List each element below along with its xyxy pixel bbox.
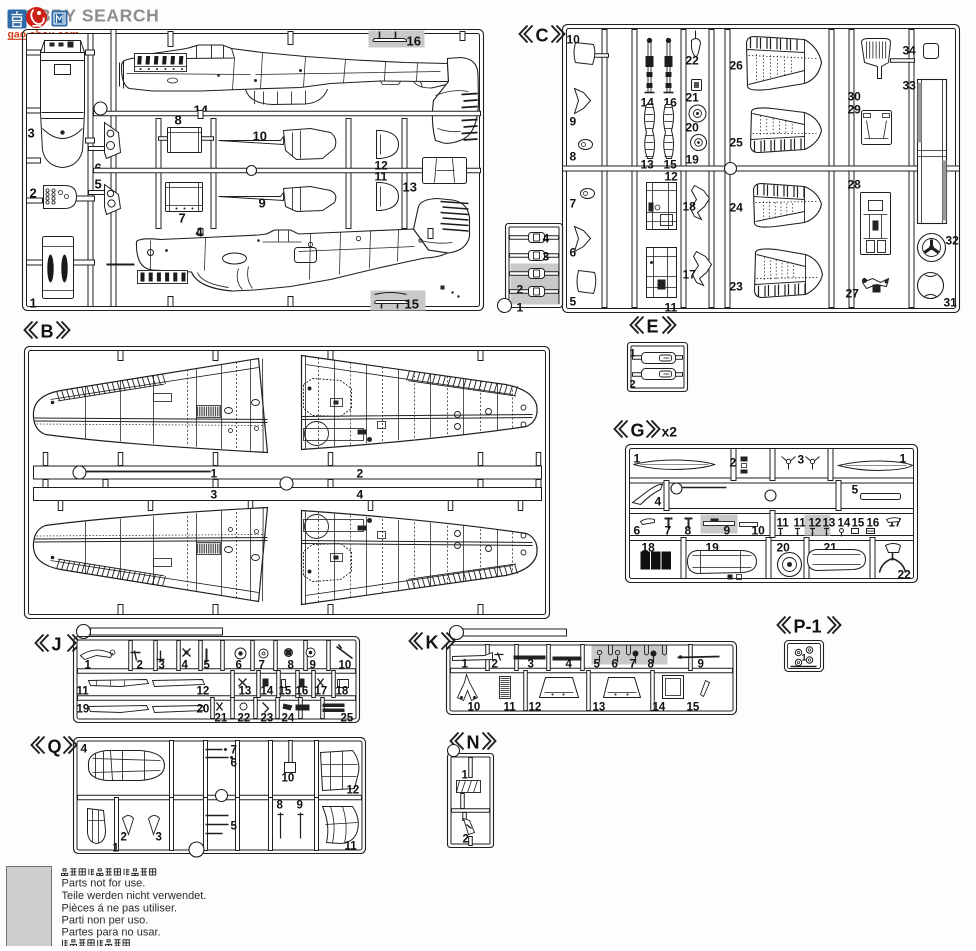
svg-text:25: 25: [730, 136, 744, 150]
svg-text:15: 15: [687, 702, 700, 714]
svg-text:33: 33: [903, 79, 917, 93]
svg-text:6: 6: [634, 524, 641, 538]
svg-text:2: 2: [492, 659, 498, 671]
svg-text:11: 11: [777, 518, 790, 530]
svg-text:13: 13: [823, 518, 836, 530]
svg-text:28: 28: [848, 178, 862, 192]
svg-text:5: 5: [95, 177, 102, 192]
svg-text:31: 31: [944, 296, 958, 310]
svg-text:22: 22: [898, 568, 912, 582]
svg-text:3: 3: [28, 126, 35, 141]
svg-text:21: 21: [215, 713, 228, 725]
svg-text:8: 8: [570, 150, 577, 164]
svg-text:14: 14: [261, 686, 274, 698]
svg-text:9: 9: [297, 800, 303, 812]
svg-text:32: 32: [946, 234, 960, 248]
svg-text:17: 17: [683, 268, 697, 282]
svg-text:1: 1: [113, 843, 120, 855]
svg-text:6: 6: [612, 659, 618, 671]
svg-text:16: 16: [867, 518, 880, 530]
svg-text:11: 11: [504, 702, 517, 714]
svg-text:16: 16: [407, 34, 421, 49]
svg-text:21: 21: [686, 91, 700, 105]
svg-text:10: 10: [567, 33, 581, 47]
svg-text:4: 4: [182, 660, 189, 672]
svg-text:Partes para no usar.: Partes para no usar.: [62, 927, 161, 939]
svg-text:18: 18: [683, 200, 697, 214]
svg-text:3: 3: [543, 250, 550, 264]
svg-text:29: 29: [848, 103, 862, 117]
svg-text:7: 7: [630, 659, 636, 671]
svg-text:13: 13: [239, 686, 252, 698]
svg-text:2: 2: [121, 832, 127, 844]
svg-text:30: 30: [848, 90, 862, 104]
svg-text:J: J: [52, 635, 62, 655]
svg-text:Q: Q: [48, 737, 62, 757]
svg-text:1: 1: [634, 452, 641, 466]
svg-text:6: 6: [231, 758, 237, 770]
svg-text:15: 15: [279, 686, 292, 698]
svg-text:3: 3: [159, 660, 165, 672]
svg-text:3: 3: [211, 488, 218, 502]
svg-text:7: 7: [179, 211, 186, 226]
svg-text:11: 11: [794, 518, 807, 530]
svg-text:9: 9: [570, 115, 577, 129]
svg-text:7: 7: [231, 745, 237, 757]
svg-text:23: 23: [261, 713, 274, 725]
svg-text:10: 10: [468, 702, 481, 714]
svg-text:x2: x2: [662, 424, 678, 440]
svg-text:1: 1: [462, 659, 469, 671]
svg-text:4: 4: [543, 232, 550, 246]
svg-text:9: 9: [310, 660, 316, 672]
svg-text:19: 19: [77, 704, 90, 716]
svg-text:20: 20: [686, 121, 700, 135]
svg-text:13: 13: [403, 180, 417, 195]
svg-text:11: 11: [665, 301, 678, 315]
svg-text:7: 7: [570, 197, 577, 211]
svg-text:3: 3: [528, 659, 534, 671]
svg-text:2: 2: [630, 379, 636, 391]
svg-text:22: 22: [686, 54, 700, 68]
svg-text:11: 11: [77, 686, 90, 698]
svg-text:26: 26: [730, 59, 744, 73]
svg-text:18: 18: [336, 686, 349, 698]
svg-text:2: 2: [730, 456, 737, 470]
svg-text:27: 27: [846, 287, 860, 301]
svg-text:12: 12: [197, 686, 210, 698]
svg-text:17: 17: [315, 686, 328, 698]
svg-text:25: 25: [341, 713, 354, 725]
svg-text:1: 1: [802, 653, 807, 663]
svg-text:1: 1: [462, 770, 469, 782]
svg-text:P-1: P-1: [794, 617, 822, 637]
svg-text:Teile werden nicht verwendet.: Teile werden nicht verwendet.: [62, 890, 207, 902]
svg-text:11: 11: [375, 170, 388, 184]
svg-text:Parti non per uso.: Parti non per uso.: [62, 915, 149, 927]
svg-text:9: 9: [724, 524, 731, 538]
svg-text:20: 20: [197, 704, 210, 716]
svg-text:14: 14: [838, 518, 851, 530]
svg-text:4: 4: [196, 225, 204, 240]
svg-text:5: 5: [852, 483, 859, 497]
svg-text:12: 12: [665, 170, 679, 184]
svg-text:3: 3: [798, 453, 805, 467]
svg-text:15: 15: [852, 518, 865, 530]
svg-text:3: 3: [156, 832, 162, 844]
svg-text:10: 10: [339, 660, 352, 672]
svg-text:12: 12: [529, 702, 542, 714]
svg-text:5: 5: [204, 660, 211, 672]
svg-text:4: 4: [81, 742, 88, 756]
svg-text:8: 8: [277, 800, 284, 812]
svg-text:Parts not for use.: Parts not for use.: [62, 878, 146, 890]
svg-text:5: 5: [570, 295, 577, 309]
svg-text:4: 4: [655, 495, 662, 509]
svg-text:23: 23: [730, 280, 744, 294]
svg-text:7: 7: [259, 660, 265, 672]
svg-text:2: 2: [357, 467, 364, 481]
svg-text:34: 34: [903, 44, 917, 58]
svg-text:5: 5: [231, 821, 238, 833]
svg-text:19: 19: [686, 153, 700, 167]
svg-text:8: 8: [648, 659, 655, 671]
svg-text:K: K: [426, 633, 439, 653]
svg-text:1: 1: [211, 467, 218, 481]
svg-text:6: 6: [570, 246, 577, 260]
svg-text:2: 2: [137, 660, 143, 672]
svg-text:1: 1: [900, 452, 907, 466]
svg-text:24: 24: [730, 201, 744, 215]
svg-text:10: 10: [282, 773, 295, 785]
svg-text:15: 15: [405, 297, 419, 312]
svg-text:1: 1: [85, 660, 92, 672]
svg-text:12: 12: [809, 518, 822, 530]
svg-text:1: 1: [30, 296, 37, 311]
svg-text:8: 8: [685, 524, 692, 538]
svg-text:13: 13: [593, 702, 606, 714]
svg-text:22: 22: [238, 713, 251, 725]
svg-text:8: 8: [288, 660, 295, 672]
svg-text:4: 4: [357, 488, 364, 502]
svg-text:9: 9: [698, 659, 704, 671]
svg-text:E: E: [647, 317, 659, 337]
svg-text:2: 2: [463, 834, 469, 846]
svg-text:6: 6: [236, 660, 242, 672]
svg-text:C: C: [536, 26, 549, 46]
svg-text:5: 5: [594, 659, 601, 671]
svg-text:24: 24: [282, 713, 295, 725]
svg-text:13: 13: [641, 158, 655, 172]
svg-text:14: 14: [653, 702, 666, 714]
svg-text:1: 1: [517, 301, 524, 315]
svg-text:B: B: [41, 322, 54, 342]
svg-text:10: 10: [752, 524, 766, 538]
svg-text:8: 8: [175, 113, 182, 128]
svg-text:11: 11: [345, 841, 358, 853]
svg-text:12: 12: [347, 785, 360, 797]
svg-text:7: 7: [665, 524, 672, 538]
svg-text:16: 16: [296, 686, 309, 698]
svg-text:9: 9: [259, 196, 266, 211]
svg-text:10: 10: [253, 129, 267, 144]
svg-text:2: 2: [517, 283, 524, 297]
svg-text:2: 2: [30, 186, 37, 201]
svg-text:N: N: [467, 733, 480, 753]
svg-text:G: G: [631, 421, 645, 441]
svg-text:4: 4: [566, 659, 573, 671]
svg-text:Pièces á ne pas utiliser.: Pièces á ne pas utiliser.: [62, 903, 178, 915]
svg-text:1: 1: [630, 348, 636, 360]
